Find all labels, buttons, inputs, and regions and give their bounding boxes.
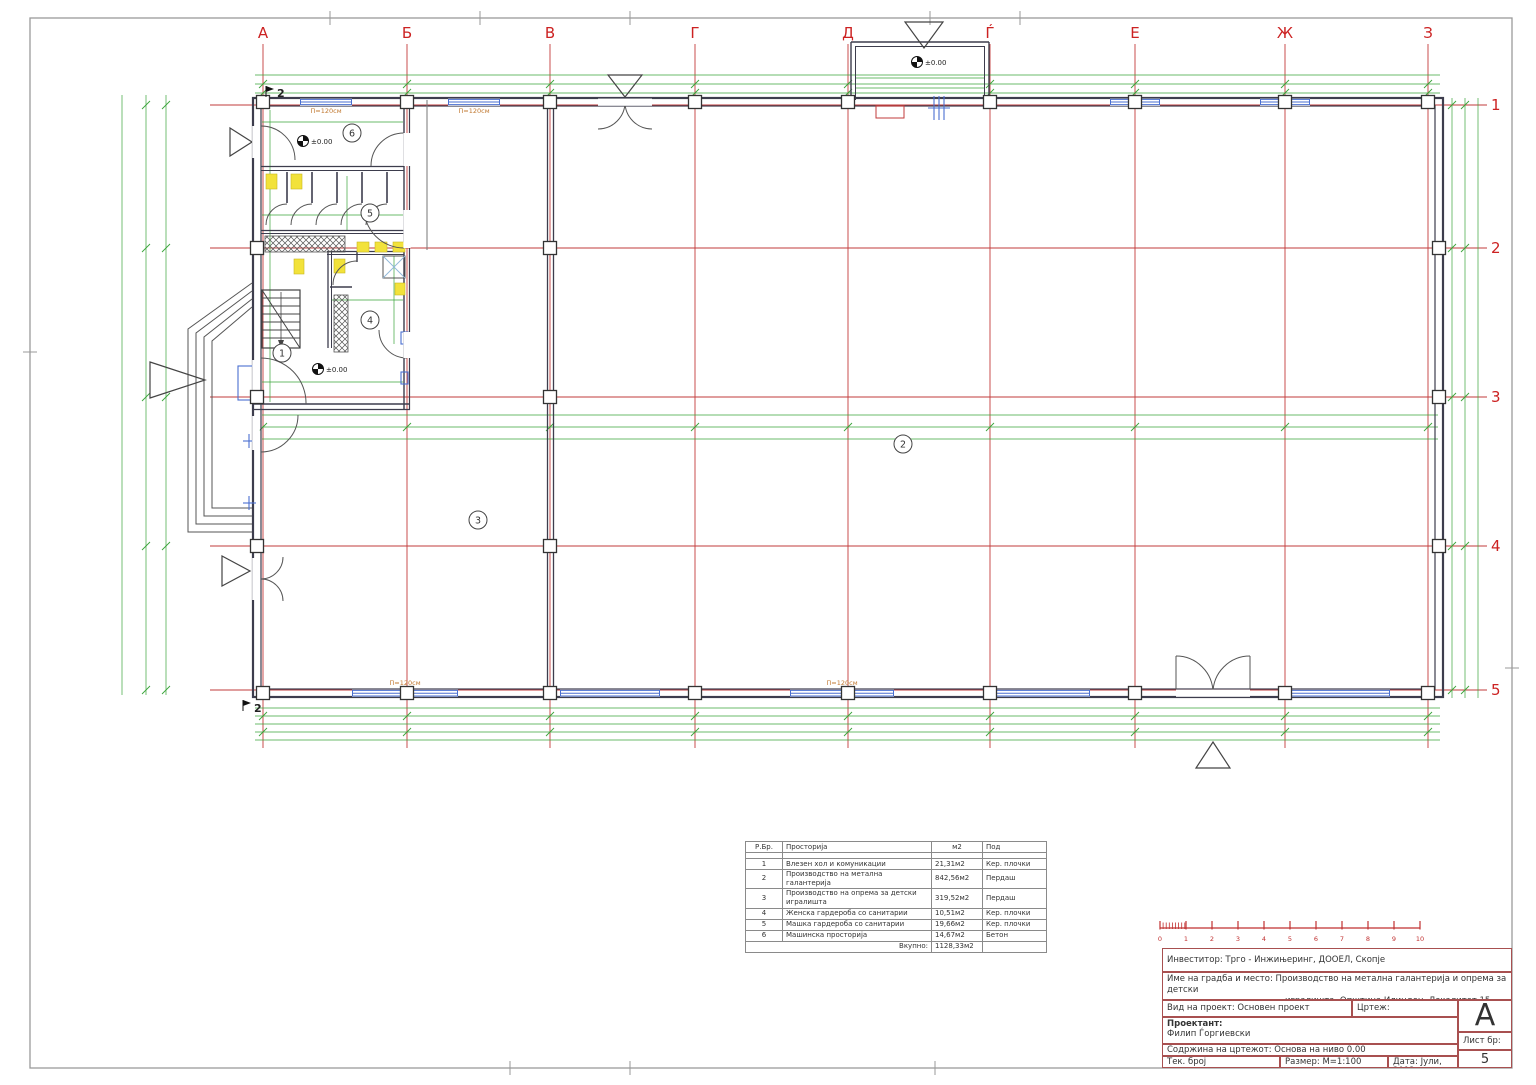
cell-floor: Пердаш	[983, 888, 1047, 908]
cell-num: 4	[746, 908, 783, 919]
project-line1: Име на градба и место: Производство на м…	[1167, 974, 1506, 995]
title-drawing-type: Цртеж: Архитектонски проект	[1352, 1000, 1458, 1017]
axis-col: А	[258, 24, 269, 42]
stairs	[262, 290, 300, 348]
level-text: ±0.00	[925, 59, 946, 67]
scale-number: 9	[1392, 935, 1396, 943]
axis-col: Г	[690, 24, 699, 42]
scale-number: 4	[1262, 935, 1266, 943]
title-content: Содржина на цртежот: Основа на ниво 0.00	[1162, 1044, 1458, 1056]
designer-name: Филип Ѓоргиевски	[1167, 1029, 1250, 1039]
title-date: Дата: Јули, 2012	[1388, 1056, 1458, 1068]
header-cell: м2	[932, 842, 983, 853]
scale-number: 1	[1184, 935, 1188, 943]
axis-row: 4	[1491, 537, 1501, 555]
cell-area: 14,67м2	[932, 930, 983, 941]
axis-col: З	[1423, 24, 1433, 42]
axis-col: Д	[842, 24, 854, 42]
room-label: 4	[367, 316, 373, 327]
cell-area: 10,51м2	[932, 908, 983, 919]
cell-name: Производство на метална галантерија	[783, 870, 932, 889]
cell-name: Производство на опрема за детски игралиш…	[783, 888, 932, 908]
table-total-row: Вкупно: 1128,33м2	[746, 941, 1047, 952]
axis-col: Б	[402, 24, 412, 42]
labels-layer: А Б В Г Д Ѓ Е Ж З 1 2 3 4 5 1 2 3 4 5 6	[243, 23, 1501, 943]
room-area-table: Р.Бр. Просторија м2 Под 1 Влезен хол и к…	[745, 841, 1047, 953]
cell-area: 319,52м2	[932, 888, 983, 908]
cell-num: 3	[746, 888, 783, 908]
format-letter: А	[1458, 1000, 1512, 1032]
window-label: П=120см	[826, 679, 857, 687]
bench-hatch	[265, 236, 345, 252]
cell-num: 1	[746, 859, 783, 870]
total-area: 1128,33м2	[932, 941, 983, 952]
axis-numbers: 1 2 3 4 5	[1491, 96, 1501, 699]
cell-num: 2	[746, 870, 783, 889]
scale-number: 0	[1158, 935, 1162, 943]
cell-floor: Кер. плочки	[983, 908, 1047, 919]
sheet-number: 5	[1458, 1050, 1512, 1068]
table-row: 6 Машинска просторија 14,67м2 Бетон	[746, 930, 1047, 941]
axis-col: Ж	[1277, 24, 1293, 42]
title-investor: Инвеститор: Трго - Инжињеринг, ДООЕЛ, Ск…	[1162, 948, 1512, 972]
room-labels: 1 2 3 4 5 6	[273, 124, 912, 529]
cell-floor: Кер. плочки	[983, 859, 1047, 870]
scale-number: 7	[1340, 935, 1344, 943]
level-text: ±0.00	[311, 138, 332, 146]
cell-name: Женска гардероба со санитарии	[783, 908, 932, 919]
cell-floor: Бетон	[983, 930, 1047, 941]
window-label: П=120см	[310, 107, 341, 115]
section-mark: 2	[277, 87, 285, 100]
designer-label: Проектант:	[1167, 1019, 1222, 1029]
room-label: 2	[900, 440, 906, 451]
scale-number: 5	[1288, 935, 1292, 943]
title-tech-number: Тек. број	[1162, 1056, 1280, 1068]
cell-area: 19,66м2	[932, 919, 983, 930]
axis-col: Е	[1130, 24, 1139, 42]
cell-name: Влезен хол и комуникации	[783, 859, 932, 870]
level-marker-symbol	[298, 136, 309, 147]
title-project-type: Вид на проект: Основен проект	[1162, 1000, 1352, 1017]
header-cell: Просторија	[783, 842, 932, 853]
total-label: Вкупно:	[746, 941, 932, 952]
table-row: 3 Производство на опрема за детски играл…	[746, 888, 1047, 908]
table-row: 1 Влезен хол и комуникации 21,31м2 Кер. …	[746, 859, 1047, 870]
drawing-sheet: А Б В Г Д Ѓ Е Ж З 1 2 3 4 5 1 2 3 4 5 6	[0, 0, 1536, 1085]
annex-detail-red	[876, 106, 904, 118]
cell-num: 5	[746, 919, 783, 930]
table-row: 2 Производство на метална галантерија 84…	[746, 870, 1047, 889]
scale-number: 2	[1210, 935, 1214, 943]
cell-floor: Пердаш	[983, 870, 1047, 889]
locker-hatch	[334, 295, 348, 352]
cell-num: 6	[746, 930, 783, 941]
level-marker-symbol	[912, 57, 923, 68]
cell-area: 21,31м2	[932, 859, 983, 870]
room-label: 5	[367, 209, 373, 220]
level-marker-symbol	[313, 364, 324, 375]
axis-row: 1	[1491, 96, 1501, 114]
cell-area: 842,56м2	[932, 870, 983, 889]
axis-row: 2	[1491, 239, 1501, 257]
plan-details	[150, 22, 1250, 768]
axis-col: В	[545, 24, 555, 42]
axis-letters: А Б В Г Д Ѓ Е Ж З	[258, 23, 1433, 42]
grid-and-dimension-lines	[122, 44, 1487, 748]
window-label: П=120см	[389, 679, 420, 687]
window-label: П=120см	[458, 107, 489, 115]
level-text: ±0.00	[326, 366, 347, 374]
scale-number: 3	[1236, 935, 1240, 943]
section-mark: 2	[254, 702, 262, 715]
header-cell: Р.Бр.	[746, 842, 783, 853]
table-header-row: Р.Бр. Просторија м2 Под	[746, 842, 1047, 853]
cell-name: Машинска просторија	[783, 930, 932, 941]
axis-col: Ѓ	[985, 23, 994, 42]
scale-number: 6	[1314, 935, 1318, 943]
scale-number: 8	[1366, 935, 1370, 943]
table-row: 5 Машка гардероба со санитарии 19,66м2 К…	[746, 919, 1047, 930]
cell-floor: Кер. плочки	[983, 919, 1047, 930]
axis-row: 3	[1491, 388, 1501, 406]
room-label: 6	[349, 129, 355, 140]
axis-row: 5	[1491, 681, 1501, 699]
room-label: 1	[279, 349, 285, 360]
title-project-name: Име на градба и место: Производство на м…	[1162, 972, 1512, 1000]
title-block: Инвеститор: Трго - Инжињеринг, ДООЕЛ, Ск…	[1162, 948, 1512, 1068]
title-scale: Размер: М=1:100	[1280, 1056, 1388, 1068]
room-label: 3	[475, 516, 481, 527]
cell-name: Машка гардероба со санитарии	[783, 919, 932, 930]
sheet-label: Лист бр:	[1458, 1032, 1512, 1050]
scale-number: 10	[1416, 935, 1424, 943]
scale-bar-numbers: 0 1 2 3 4 5 6 7 8 9 10	[1158, 935, 1424, 943]
entrance-canopy	[188, 283, 252, 532]
header-cell: Под	[983, 842, 1047, 853]
table-row: 4 Женска гардероба со санитарии 10,51м2 …	[746, 908, 1047, 919]
entrance-triangles	[150, 22, 1230, 768]
